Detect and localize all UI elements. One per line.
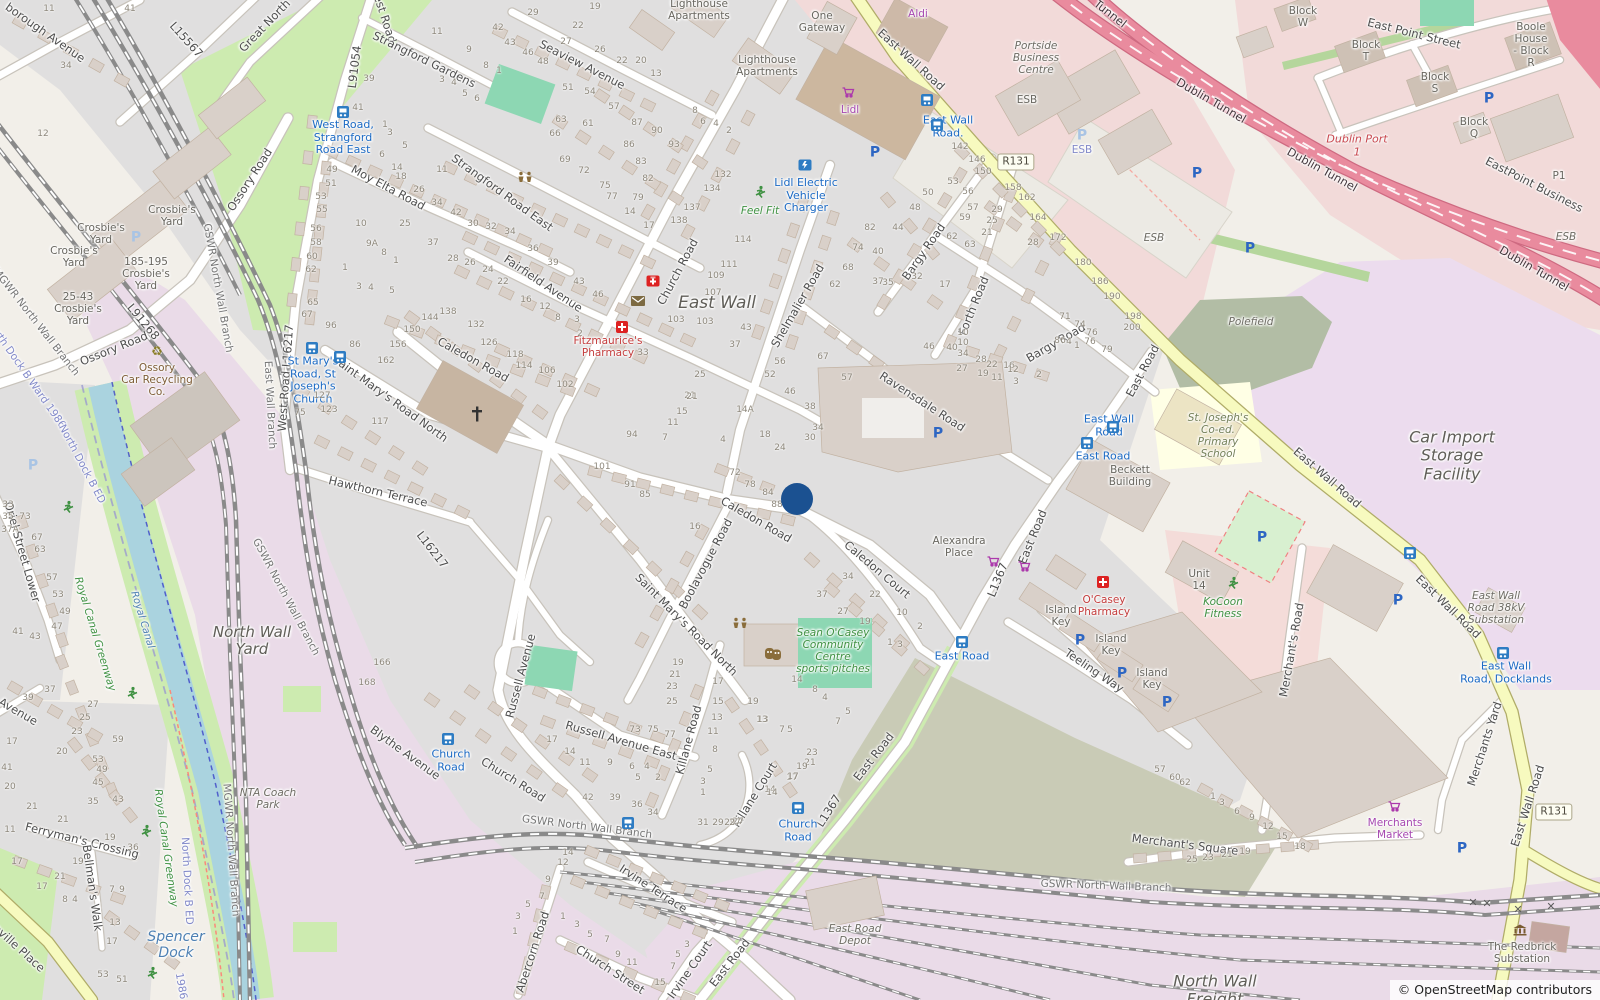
- house-number: 21: [669, 670, 680, 680]
- house-number: 5: [587, 930, 593, 940]
- supermarket-icon: [987, 555, 1000, 567]
- house-number: 4: [644, 762, 650, 772]
- house-number: 11: [43, 4, 54, 14]
- map-label-russell-avenue-east: Russell Avenue East: [564, 719, 678, 763]
- house-number: 132: [714, 170, 731, 180]
- house-number: 8: [555, 313, 561, 323]
- house-number: 59: [959, 213, 970, 223]
- house-number: 186: [1091, 277, 1108, 287]
- house-number: 5: [462, 89, 468, 99]
- map-label-east-road: East Road: [1124, 343, 1163, 400]
- house-number: 111: [720, 260, 737, 270]
- house-number: 45: [92, 778, 103, 788]
- house-number: 56: [310, 224, 321, 234]
- house-number: 5: [525, 900, 531, 910]
- map-label-1986: 1986: [173, 972, 190, 1000]
- house-number: 36: [631, 800, 642, 810]
- house-number: 57: [46, 573, 57, 583]
- house-number: 11: [707, 727, 718, 737]
- map-label-seville-place: Seville Place: [0, 917, 47, 975]
- house-number: 46: [522, 48, 533, 58]
- parking-faded-icon: P: [131, 237, 141, 238]
- map-label-ravensdale-road: Ravensdale Road: [877, 369, 967, 434]
- church-cross-icon: [471, 407, 484, 422]
- house-number: 1: [496, 66, 502, 76]
- map-label-irvine-terrace: Irvine Terrace: [617, 862, 690, 916]
- house-number: 38: [804, 402, 815, 412]
- bus-icon: [792, 802, 804, 814]
- house-number: 164: [1029, 213, 1046, 223]
- map-label-seaview-avenue: Seaview Avenue: [537, 38, 627, 93]
- house-number: 25: [399, 219, 410, 229]
- house-number: 8: [712, 745, 718, 755]
- house-number: 22: [869, 590, 880, 600]
- house-number: 74: [1074, 320, 1085, 330]
- house-number: 9: [1249, 813, 1255, 823]
- map-label-185-195-crosbie-s-yard: 185-195 Crosbie's Yard: [122, 256, 170, 292]
- house-number: 72: [578, 166, 589, 176]
- map-label-esb: ESB: [1556, 231, 1577, 243]
- level-crossing-icon: ✕: [1482, 902, 1491, 904]
- parking-faded-icon: P: [1077, 135, 1087, 136]
- house-number: 73: [19, 512, 30, 522]
- house-number: 59: [112, 735, 123, 745]
- house-number: 79: [632, 193, 643, 203]
- house-number: 18: [1294, 842, 1305, 852]
- map-label-esb: ESB: [1017, 94, 1038, 106]
- house-number: 144: [421, 313, 438, 323]
- house-number: 168: [358, 678, 375, 688]
- parking-icon: P: [1393, 600, 1403, 601]
- pharmacy-icon: [1097, 576, 1109, 588]
- house-number: 14: [766, 788, 777, 798]
- house-number: 8: [692, 106, 698, 116]
- map-label-bargy-road: Bargy Road: [900, 221, 949, 283]
- house-number: 107: [704, 288, 721, 298]
- house-number: 56: [962, 187, 973, 197]
- house-number: 5: [707, 765, 713, 775]
- house-number: 15: [712, 697, 723, 707]
- house-number: 21: [57, 815, 68, 825]
- house-number: 67: [301, 310, 312, 320]
- house-number: 117: [371, 417, 388, 427]
- house-number: 37: [729, 340, 740, 350]
- house-number: 35: [87, 797, 98, 807]
- house-number: 34: [504, 227, 515, 237]
- house-number: 12: [539, 302, 550, 312]
- house-number: 40: [872, 247, 883, 257]
- house-number: 43: [740, 323, 751, 333]
- road-ref-badge: R131: [997, 154, 1034, 171]
- house-number: 12: [1262, 822, 1273, 832]
- house-number: 2: [655, 773, 661, 783]
- house-number: 5: [845, 707, 851, 717]
- house-number: 5: [787, 725, 793, 735]
- map-label-crosbie-s-yard: Crosbie's Yard: [148, 204, 196, 228]
- playground-icon: [517, 172, 534, 183]
- house-number: 49: [326, 165, 337, 175]
- map-label-royal-canal: Royal Canal: [128, 590, 156, 650]
- house-number: 63: [34, 545, 45, 555]
- house-number: 47: [51, 622, 62, 632]
- house-number: 198: [1124, 312, 1141, 322]
- map-attribution: © OpenStreetMap contributors: [1390, 980, 1600, 1000]
- level-crossing-icon: ✕: [1513, 908, 1522, 910]
- map-label-killane-road: Killane Road: [673, 704, 704, 776]
- house-number: 17: [106, 937, 117, 947]
- map-label-l16217: L16217: [414, 529, 451, 571]
- house-number: 39: [22, 693, 33, 703]
- playground-icon: [732, 618, 749, 629]
- house-number: 17: [643, 221, 654, 231]
- house-number: 9A: [366, 239, 378, 249]
- house-number: 76: [1086, 328, 1097, 338]
- house-number: 5: [402, 141, 408, 151]
- house-number: 2: [726, 126, 732, 136]
- bus-icon: [306, 342, 318, 354]
- map-label-east-road: East Road: [935, 651, 990, 664]
- house-number: 28: [975, 355, 986, 365]
- house-number: 3: [515, 912, 521, 922]
- house-number: 76: [1084, 337, 1095, 347]
- house-number: 34: [60, 61, 71, 71]
- map-label-mgwr-north-wall-branch: MGWR North Wall Branch: [220, 783, 241, 917]
- house-number: 21: [26, 802, 37, 812]
- map-label-lidl-electric-vehicle-charger: Lidl Electric Vehicle Charger: [774, 177, 837, 215]
- map-label-sean-o-casey-community-centre-sports-pit: Sean O'Casey Community Centre sports pit…: [796, 627, 870, 675]
- house-number: 19: [747, 697, 758, 707]
- osm-link[interactable]: OpenStreetMap: [1414, 982, 1512, 997]
- house-number: 6: [474, 94, 480, 104]
- house-number: 19: [672, 658, 683, 668]
- house-number: 9: [545, 875, 551, 885]
- house-number: 172: [1049, 233, 1066, 243]
- supermarket-icon: [842, 86, 855, 98]
- house-number: 82: [642, 174, 653, 184]
- house-number: 24: [482, 265, 493, 275]
- house-number: 8: [62, 895, 68, 905]
- house-number: 91: [624, 480, 635, 490]
- house-number: 94: [626, 430, 637, 440]
- house-number: 10: [896, 608, 907, 618]
- house-number: 40: [946, 343, 957, 353]
- house-number: 102: [556, 380, 573, 390]
- house-number: 8: [812, 685, 818, 695]
- house-number: 19: [589, 2, 600, 12]
- house-number: 62: [1179, 778, 1190, 788]
- map-label-merchant-s-road: Merchant's Road: [1277, 602, 1307, 698]
- house-number: 10: [957, 328, 968, 338]
- map-label-block-w: Block W: [1289, 5, 1317, 29]
- house-number: 1: [512, 927, 518, 937]
- house-number: 28: [1027, 238, 1038, 248]
- house-number: 137: [683, 203, 700, 213]
- house-number: 3: [1219, 798, 1225, 808]
- house-number: 34: [431, 198, 442, 208]
- house-number: 19: [1239, 847, 1250, 857]
- house-number: 150: [974, 167, 991, 177]
- attribution-suffix: contributors: [1516, 982, 1592, 997]
- bus-icon: [1404, 547, 1416, 559]
- parking-faded-icon: P: [28, 465, 38, 466]
- house-number: 18: [759, 430, 770, 440]
- house-number: 46: [923, 342, 934, 352]
- house-number: 3: [684, 940, 690, 950]
- house-number: 75: [294, 408, 305, 418]
- house-number: 17: [787, 772, 798, 782]
- map-label-boolavogue-road: Boolavogue Road: [677, 517, 736, 612]
- house-number: 53: [97, 970, 108, 980]
- house-number: 180: [1074, 258, 1091, 268]
- house-number: 83: [635, 157, 646, 167]
- house-number: 16: [520, 295, 531, 305]
- house-number: 39: [363, 74, 374, 84]
- house-number: 17: [6, 737, 17, 747]
- house-number: 11: [431, 27, 442, 37]
- house-number: 30: [804, 433, 815, 443]
- house-number: 4: [368, 283, 374, 293]
- house-number: 7: [779, 725, 785, 735]
- house-number: 34: [957, 349, 968, 359]
- house-number: 15: [654, 978, 665, 988]
- house-number: 77: [606, 192, 617, 202]
- house-number: 17: [11, 857, 22, 867]
- house-number: 25: [694, 370, 705, 380]
- map-label-polefield: Polefield: [1229, 316, 1274, 328]
- house-number: 32: [911, 272, 922, 282]
- house-number: 14: [562, 848, 573, 858]
- pharmacy-icon: [616, 321, 628, 333]
- map-label-royal-canal-greenway: Royal Canal Greenway: [72, 575, 118, 692]
- map-label-island-key: Island Key: [1095, 633, 1126, 657]
- map-label-alexandra-place: Alexandra Place: [932, 535, 985, 559]
- house-number: 4: [1066, 337, 1072, 347]
- house-number: 138: [670, 216, 687, 226]
- house-number: 4: [720, 435, 726, 445]
- house-number: 29: [527, 8, 538, 18]
- house-number: 2: [1036, 370, 1042, 380]
- house-number: 6: [700, 117, 706, 127]
- house-number: 86: [623, 140, 634, 150]
- map-label-block-q: Block Q: [1460, 116, 1488, 140]
- map-label-church-road: Church Road: [478, 755, 547, 805]
- house-number: 37A: [1, 525, 19, 535]
- map-label-lidl: Lidl: [841, 104, 859, 116]
- house-number: 53: [315, 192, 326, 202]
- house-number: 10: [355, 219, 366, 229]
- house-number: 138: [439, 307, 456, 317]
- house-number: 8: [1054, 336, 1060, 346]
- house-number: 67: [31, 533, 42, 543]
- location-marker[interactable]: [781, 483, 813, 515]
- house-number: 52: [764, 370, 775, 380]
- house-number: 35: [882, 278, 893, 288]
- house-number: 41: [124, 4, 135, 14]
- map-viewport[interactable]: borough AvenueL15567Great NorthWest Road…: [0, 0, 1600, 1000]
- house-number: 62: [305, 265, 316, 275]
- house-number: 12: [557, 858, 568, 868]
- house-number: 43: [573, 277, 584, 287]
- map-label-east-wall-road: East Wall Road: [875, 27, 947, 94]
- house-number: 14: [624, 207, 635, 217]
- house-number: 34: [812, 423, 823, 433]
- house-number: 3: [356, 282, 362, 292]
- house-number: 75: [647, 725, 658, 735]
- house-number: 51: [325, 179, 336, 189]
- house-number: 57: [1154, 765, 1165, 775]
- house-number: 15: [676, 407, 687, 417]
- map-label-l91054: L91054: [346, 45, 364, 89]
- house-number: 7: [604, 935, 610, 945]
- house-number: 14: [791, 675, 802, 685]
- map-label-strangford-road-east: Strangford Road East: [449, 152, 556, 234]
- house-number: 37: [816, 590, 827, 600]
- house-number: 19: [796, 762, 807, 772]
- house-number: 27: [956, 364, 967, 374]
- house-number: 29: [991, 205, 1002, 215]
- house-number: 43: [112, 795, 123, 805]
- house-number: 12: [1007, 365, 1018, 375]
- house-number: 29: [712, 818, 723, 828]
- house-number: 158: [1004, 183, 1021, 193]
- house-number: 41: [1, 763, 12, 773]
- bus-icon: [334, 351, 346, 363]
- house-number: 24: [774, 443, 785, 453]
- house-number: 2: [917, 622, 923, 632]
- house-number: 32: [485, 222, 496, 232]
- map-label-25-43-crosbie-s-yard: 25-43 Crosbie's Yard: [54, 291, 102, 327]
- bus-icon: [1497, 647, 1509, 659]
- runner-icon: [140, 825, 152, 838]
- house-number: 55: [316, 205, 327, 215]
- house-number: 46: [592, 290, 603, 300]
- house-number: 134: [703, 184, 720, 194]
- house-number: 22: [616, 56, 627, 66]
- map-label-dublin-tunnel: Dublin Tunnel: [1174, 76, 1248, 127]
- map-label-beckett-building: Beckett Building: [1109, 464, 1152, 488]
- map-label-east-road: East Road: [1076, 451, 1131, 464]
- map-label-l15567: L15567: [167, 20, 206, 61]
- house-number: 50: [922, 188, 933, 198]
- house-number: 10: [957, 338, 968, 348]
- map-label-hawthorn-terrace: Hawthorn Terrace: [327, 474, 429, 510]
- parking-icon: P: [1162, 702, 1172, 703]
- house-number: 123: [320, 405, 337, 415]
- map-label-east-road-depot: East Road Depot: [829, 923, 882, 947]
- house-number: 39: [547, 258, 558, 268]
- house-number: 127: [313, 391, 330, 401]
- map-label-gswr-north-wall-branch: GSWR North Wall Branch: [201, 223, 236, 354]
- map-label-east-road: East Road: [1016, 508, 1050, 566]
- house-number: 25: [1186, 855, 1197, 865]
- house-number: 7: [539, 892, 545, 902]
- map-label-shelmalier-road: Shelmalier Road: [769, 262, 827, 350]
- house-number: 84: [762, 488, 773, 498]
- map-label-church-road: Church Road: [779, 818, 818, 843]
- house-number: 5: [389, 286, 395, 296]
- house-number: 46: [784, 387, 795, 397]
- runner-icon: [754, 186, 766, 199]
- house-number: 15: [1276, 832, 1287, 842]
- house-number: 11: [4, 825, 15, 835]
- house-number: 17: [546, 735, 557, 745]
- house-number: 9: [607, 758, 613, 768]
- parking-icon: P: [1484, 98, 1494, 99]
- house-number: 51: [116, 975, 127, 985]
- house-number: 3: [897, 640, 903, 650]
- map-label-great-north: Great North: [237, 0, 294, 55]
- house-number: 68: [842, 263, 853, 273]
- house-number: 14: [564, 747, 575, 757]
- level-crossing-icon: ✕: [1546, 905, 1555, 907]
- map-label-portside-business-centre: Portside Business Centre: [1013, 40, 1059, 76]
- map-label-church-road: Church Road: [432, 748, 471, 773]
- map-label-east-road: East Road: [851, 730, 897, 783]
- map-label-lighthouse-apartments: Lighthouse Apartments: [736, 54, 798, 78]
- house-number: 53: [52, 590, 63, 600]
- house-number: 106: [538, 366, 555, 376]
- house-number: 44: [892, 223, 903, 233]
- house-number: 93: [668, 140, 679, 150]
- runner-icon: [126, 687, 138, 700]
- house-number: 42: [582, 793, 593, 803]
- map-label-boole-house-block-r: Boole House - Block R: [1513, 21, 1549, 69]
- runner-icon: [62, 501, 74, 514]
- house-number: 26: [413, 185, 424, 195]
- house-number: 26: [594, 45, 605, 55]
- map-label-east-wall-road: East Wall Road: [1291, 445, 1364, 511]
- firstaid-icon: [647, 276, 660, 287]
- house-number: 39: [609, 793, 620, 803]
- house-number: 101: [593, 462, 610, 472]
- map-label-esb: ESB: [1144, 232, 1165, 244]
- house-number: 1: [700, 788, 706, 798]
- map-label-caledon-road: Caledon Road: [435, 335, 511, 385]
- house-number: 49: [96, 765, 107, 775]
- house-number: 36: [527, 244, 538, 254]
- house-number: 82: [864, 223, 875, 233]
- house-number: 17: [939, 280, 950, 290]
- house-number: 51: [562, 83, 573, 93]
- house-number: 53: [947, 177, 958, 187]
- house-number: 27: [87, 700, 98, 710]
- house-number: 6: [1234, 807, 1240, 817]
- house-number: 126: [480, 338, 497, 348]
- house-number: 3: [700, 777, 706, 787]
- house-number: 74: [852, 243, 863, 253]
- house-number: 114: [515, 361, 532, 371]
- house-number: 142: [951, 142, 968, 152]
- mail-icon: [631, 296, 645, 306]
- map-label-merchants-market: Merchants Market: [1368, 817, 1423, 841]
- house-number: 66: [549, 129, 560, 139]
- house-number: 42: [450, 208, 461, 218]
- house-number: 13: [711, 713, 722, 723]
- house-number: 48: [537, 57, 548, 67]
- map-label-dublin-tunnel: Dublin Tunnel: [1497, 244, 1571, 295]
- house-number: 118: [506, 350, 523, 360]
- map-label-spencer-dock: Spencer Dock: [147, 929, 204, 961]
- map-label-abercorn-road: Abercorn Road: [514, 910, 553, 994]
- house-number: 87: [631, 118, 642, 128]
- house-number: 2: [577, 329, 583, 339]
- house-number: 57: [841, 373, 852, 383]
- house-number: 7: [835, 717, 841, 727]
- bus-icon: [442, 733, 454, 745]
- house-number: 13: [109, 918, 120, 928]
- house-number: 21: [54, 872, 65, 882]
- parking-icon: P: [1457, 848, 1467, 849]
